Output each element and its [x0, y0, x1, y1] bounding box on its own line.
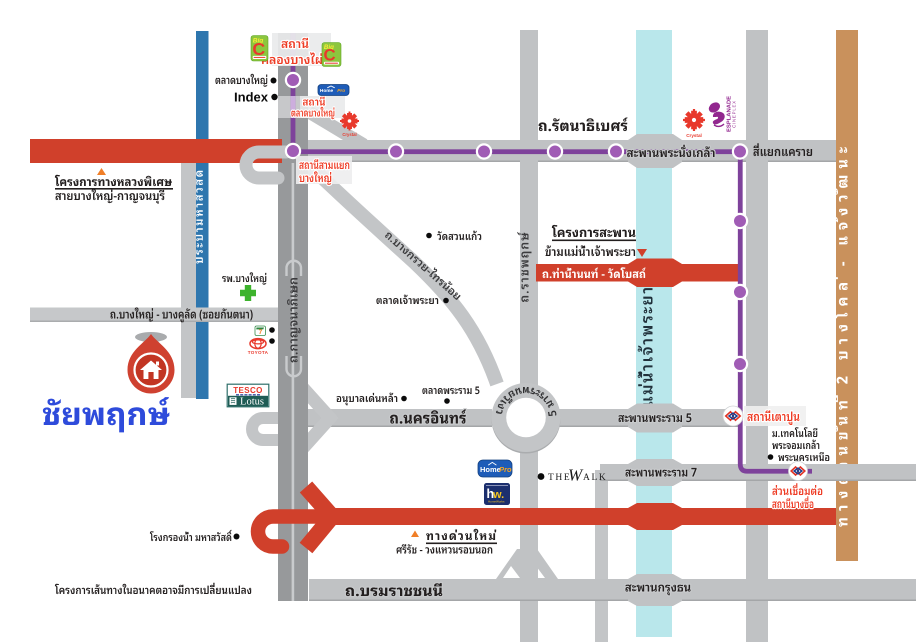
svg-text:Home: Home	[320, 88, 334, 94]
svg-text:7: 7	[259, 329, 263, 336]
svg-text:ALK: ALK	[583, 473, 607, 483]
svg-text:Crystal: Crystal	[686, 133, 702, 138]
svg-text:TESCO: TESCO	[233, 386, 263, 395]
svg-text:Crystal: Crystal	[342, 132, 356, 137]
svg-text:Home: Home	[480, 465, 501, 474]
svg-text:HomeWorks: HomeWorks	[488, 500, 505, 504]
svg-text:Pro: Pro	[499, 465, 512, 474]
svg-text:Pro: Pro	[337, 88, 345, 94]
svg-text:Lotus: Lotus	[240, 397, 264, 408]
svg-text:W: W	[568, 466, 584, 485]
svg-text:TOYOTA: TOYOTA	[248, 350, 269, 355]
